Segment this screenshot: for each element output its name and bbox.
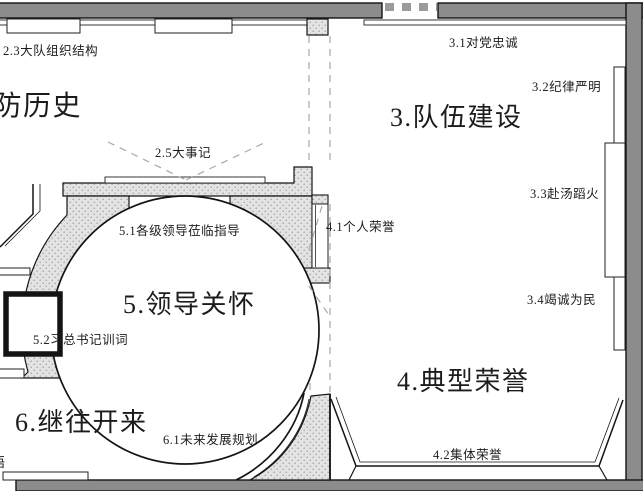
events-display-board — [105, 177, 265, 183]
zone4-display-wall-left-tick — [349, 466, 356, 480]
zone-label-2-3: 2.3大队组织结构 — [3, 40, 98, 59]
left-edge-step-upper — [0, 268, 30, 275]
zone-label-3-4: 3.4竭诚为民 — [527, 289, 596, 308]
wall-right — [626, 3, 642, 491]
niche-top-arm — [312, 195, 328, 204]
niche-display-case — [312, 204, 328, 268]
zone-label-3-2: 3.2纪律严明 — [532, 76, 601, 95]
zone-label-3-1: 3.1对党忠诚 — [449, 32, 518, 51]
display-board-b — [155, 19, 232, 33]
zone-label-3-3: 3.3赴汤蹈火 — [530, 183, 599, 202]
zone-label-2-5: 2.5大事记 — [155, 142, 211, 161]
zone-label-5-1: 5.1各级领导莅临指导 — [119, 220, 240, 239]
wall-top-left — [0, 3, 382, 18]
pier-column — [307, 19, 328, 35]
right-wall-panel-1 — [614, 67, 625, 143]
display-rail-right — [364, 20, 626, 25]
zone-label-5-2: 5.2习总书记训词 — [33, 329, 128, 348]
display-board-a — [7, 19, 80, 33]
left-corridor-outer — [0, 184, 33, 247]
zone-label-edge-partial: 语 — [0, 452, 6, 471]
zone-label-6-1: 6.1未来发展规划 — [163, 429, 258, 448]
zone-title-5: 5.领导关怀 — [123, 284, 256, 321]
bottom-left-display — [3, 472, 88, 480]
zone4-display-wall-right-tick — [599, 466, 607, 480]
zone-label-4-1: 4.1个人荣誉 — [326, 216, 395, 235]
floor-plan: 2.3大队组织结构 消防历史 2.5大事记 3.1对党忠诚 3.2纪律严明 3.… — [0, 0, 643, 491]
zone-label-4-2: 4.2集体荣誉 — [433, 444, 502, 463]
left-edge-step-lower — [0, 369, 24, 378]
zone-title-3: 3.队伍建设 — [390, 97, 523, 134]
right-wall-panel-3 — [614, 277, 625, 350]
zone-title-6: 6.继往开来 — [15, 402, 148, 439]
wall-top-right — [438, 3, 643, 18]
zone-title-4: 4.典型荣誉 — [397, 361, 530, 398]
zone-title-history: 消防历史 — [0, 84, 82, 124]
wall-bottom — [16, 480, 643, 491]
right-wall-panel-2 — [605, 143, 625, 277]
